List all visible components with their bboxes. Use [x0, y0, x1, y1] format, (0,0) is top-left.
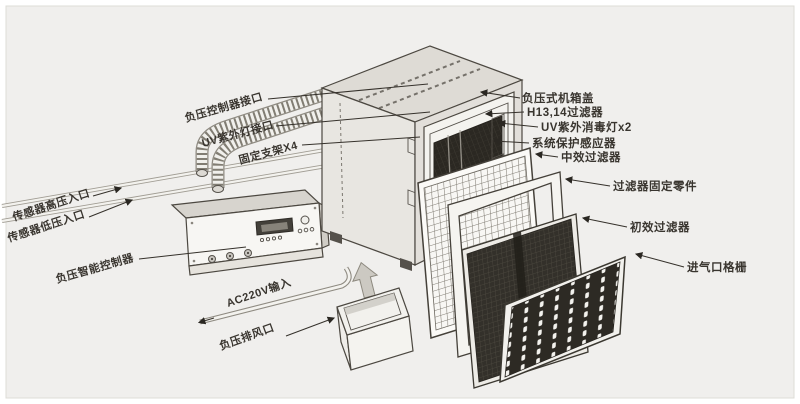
hose-end-2: [213, 186, 224, 193]
label-inlet-grille: 进气口格栅: [687, 260, 747, 274]
label-uv-sterilize-lamp: UV紫外消毒灯x2: [541, 120, 632, 134]
label-medium-filter: 中效过滤器: [561, 150, 621, 164]
hose-end-1: [197, 170, 208, 177]
label-hepa-filter: H13,14过滤器: [527, 105, 603, 119]
exploded-view-drawing: 负压控制器接口 UV紫外灯接口 固定支架X4 传感器高压入口 传感器低压入口 负…: [0, 0, 800, 404]
label-protect-sensor: 系统保护感应器: [532, 136, 616, 150]
diagram-canvas: 负压控制器接口 UV紫外灯接口 固定支架X4 传感器高压入口 传感器低压入口 负…: [0, 0, 800, 404]
controller-knob: [301, 216, 309, 224]
label-case-cover: 负压式机箱盖: [522, 91, 594, 105]
label-primary-filter: 初效过滤器: [630, 220, 690, 234]
label-filter-fixing: 过滤器固定零件: [613, 179, 697, 193]
